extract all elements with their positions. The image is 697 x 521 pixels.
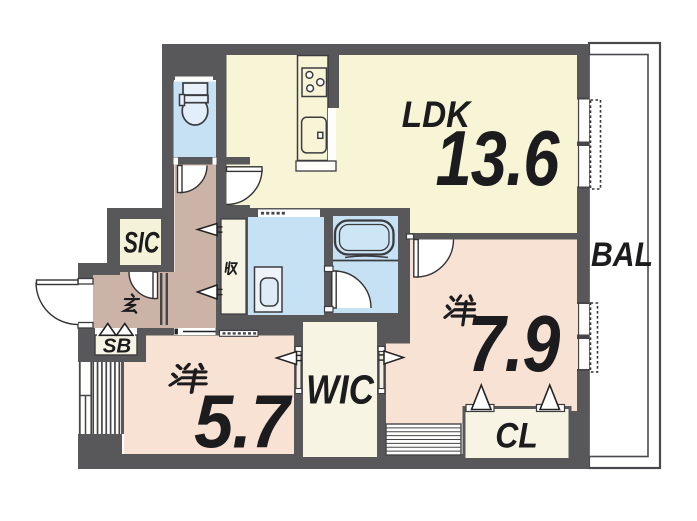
svg-text:SIC: SIC xyxy=(124,225,161,259)
svg-text:SB: SB xyxy=(103,335,132,358)
svg-text:13.6: 13.6 xyxy=(435,115,560,202)
svg-text:WIC: WIC xyxy=(306,368,374,413)
svg-text:7.9: 7.9 xyxy=(468,299,561,388)
svg-text:CL: CL xyxy=(495,416,538,456)
svg-text:5.7: 5.7 xyxy=(194,380,293,464)
svg-text:BAL: BAL xyxy=(591,235,653,273)
